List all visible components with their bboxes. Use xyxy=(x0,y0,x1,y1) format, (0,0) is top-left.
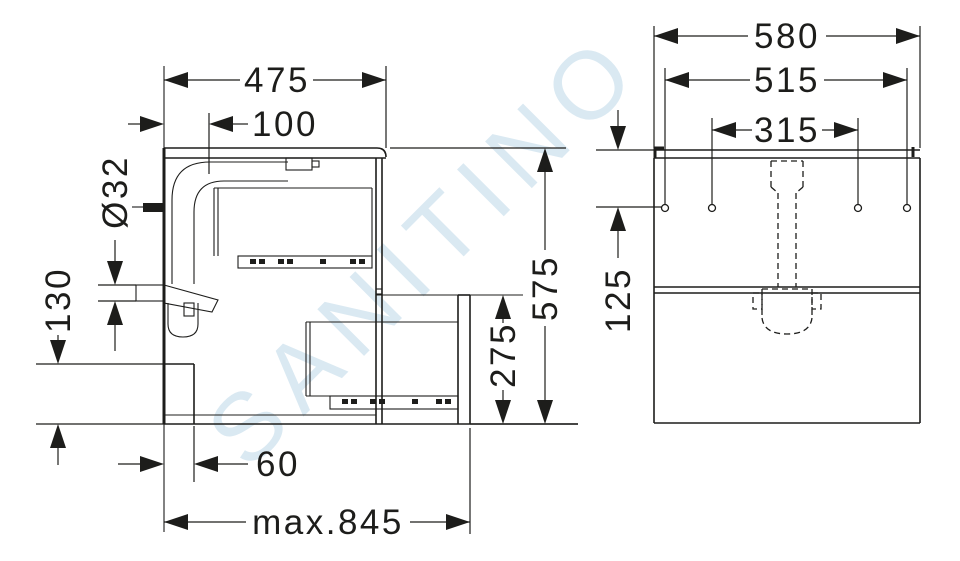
dim-label-60: 60 xyxy=(256,445,300,484)
mounting-hole-4 xyxy=(904,205,911,212)
technical-drawing-page: SANITINO xyxy=(0,0,960,561)
wall-screw xyxy=(132,203,164,212)
upper-drawer-side xyxy=(214,188,372,268)
mounting-holes xyxy=(662,205,911,212)
cabinet-front-outline xyxy=(654,147,920,423)
mounting-hole-1 xyxy=(662,205,669,212)
mounting-hole-3 xyxy=(855,205,862,212)
dim-pipe-diameter-32: Ø32 xyxy=(96,155,136,351)
dim-label-575: 575 xyxy=(526,255,565,321)
dim-cutout-height-130: 130 xyxy=(36,267,164,465)
dim-label-o32: Ø32 xyxy=(96,155,135,229)
dim-label-130: 130 xyxy=(39,267,78,333)
drawer-slide-marks-lower xyxy=(342,399,451,404)
dim-label-515: 515 xyxy=(754,61,820,100)
vanity-dimension-drawing: SANITINO xyxy=(0,0,960,561)
dim-label-275: 275 xyxy=(484,322,523,388)
dim-max-pullout-845: max.845 xyxy=(164,428,470,542)
drain-pipe-front-dashed xyxy=(753,161,821,334)
dim-front-height-275: 275 xyxy=(484,295,523,424)
dim-label-125: 125 xyxy=(599,267,638,333)
mounting-hole-2 xyxy=(709,205,716,212)
dim-label-315: 315 xyxy=(754,111,820,150)
dim-label-580: 580 xyxy=(754,17,820,56)
dim-waste-offset-100: 100 xyxy=(128,105,318,174)
dim-label-475: 475 xyxy=(244,61,310,100)
dim-label-100: 100 xyxy=(252,105,318,144)
dim-label-max845: max.845 xyxy=(252,503,404,542)
